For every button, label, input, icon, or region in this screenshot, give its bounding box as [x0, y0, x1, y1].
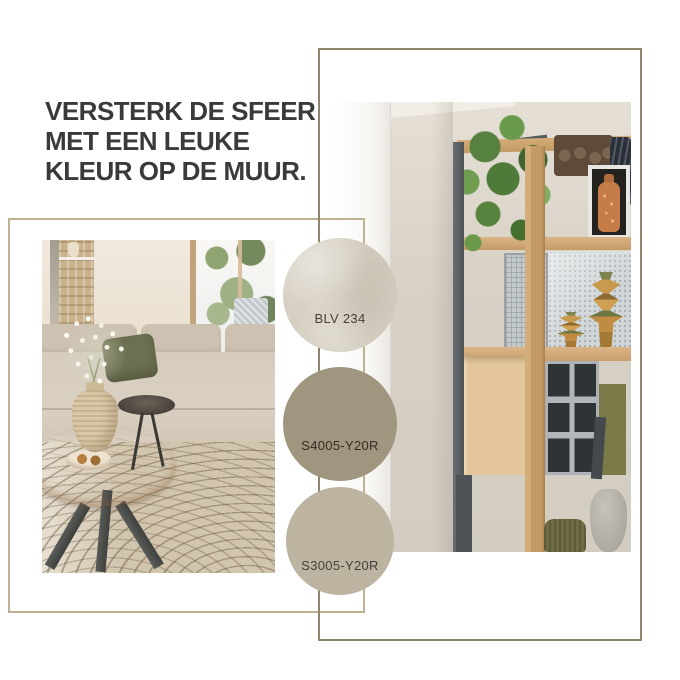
paint-swatch-s3005-y20r: S3005-Y20R: [286, 487, 394, 595]
paint-code-label: S4005-Y20R: [301, 438, 378, 481]
title-line-1: VERSTERK DE SFEER: [45, 96, 315, 126]
paint-code-label: BLV 234: [314, 311, 365, 352]
title-line-2: MET EEN LEUKE: [45, 126, 315, 156]
title-line-3: KLEUR OP DE MUUR.: [45, 156, 315, 186]
lookbook-page: VERSTERK DE SFEER MET EEN LEUKE KLEUR OP…: [0, 0, 680, 680]
paint-swatch-blv-234: BLV 234: [283, 238, 397, 352]
paint-code-label: S3005-Y20R: [301, 558, 378, 595]
paint-swatch-s4005-y20r: S4005-Y20R: [283, 367, 397, 481]
page-title: VERSTERK DE SFEER MET EEN LEUKE KLEUR OP…: [45, 96, 315, 186]
